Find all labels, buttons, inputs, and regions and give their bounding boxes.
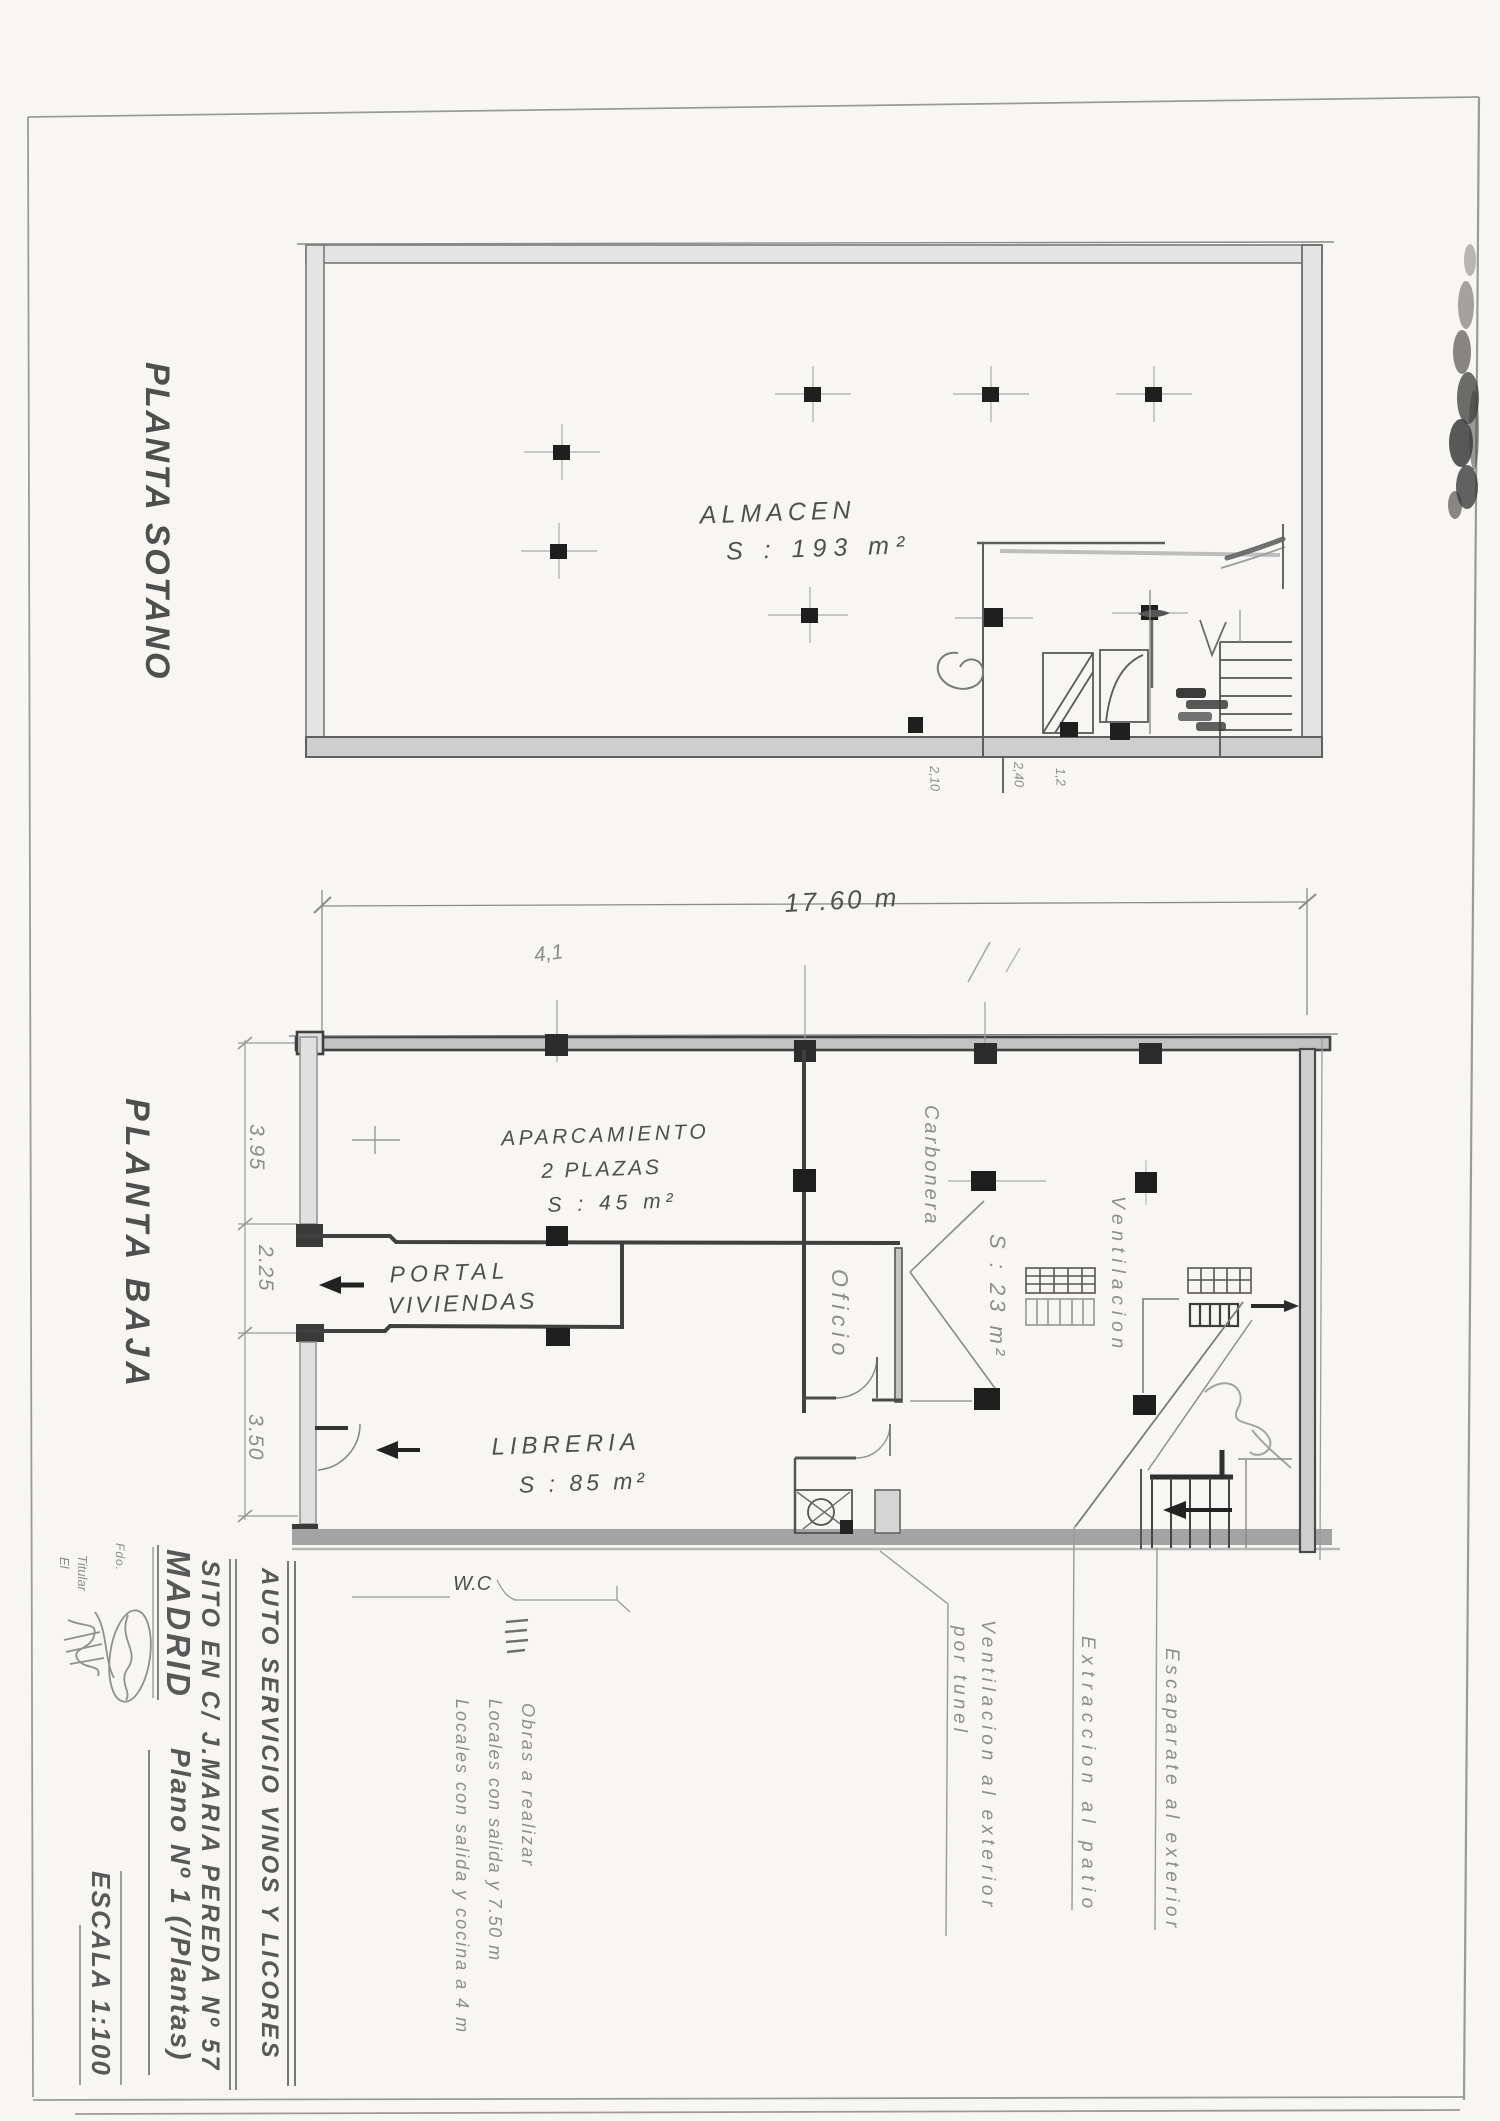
svg-text:PLANTA SOTANO: PLANTA SOTANO — [138, 362, 176, 681]
svg-text:S : 23 m²: S : 23 m² — [985, 1234, 1010, 1359]
svg-text:Ventilacion al exterior: Ventilacion al exterior — [977, 1620, 998, 1911]
svg-text:AUTO SERVICIO VINOS Y LICORES: AUTO SERVICIO VINOS Y LICORES — [256, 1567, 283, 2060]
svg-text:S : 45 m²: S : 45 m² — [547, 1189, 678, 1217]
svg-text:por tunel: por tunel — [949, 1625, 970, 1736]
svg-text:Titular: Titular — [75, 1555, 90, 1592]
svg-text:S : 85 m²: S : 85 m² — [518, 1467, 648, 1497]
svg-text:1,2: 1,2 — [1053, 768, 1069, 787]
svg-text:17.60 m: 17.60 m — [784, 882, 900, 918]
svg-text:Extraccion al patio: Extraccion al patio — [1077, 1636, 1098, 1915]
svg-text:Ventilacion: Ventilacion — [1107, 1196, 1128, 1354]
svg-text:W.C: W.C — [453, 1573, 492, 1595]
svg-text:VIVIENDAS: VIVIENDAS — [387, 1287, 538, 1318]
svg-text:ALMACEN: ALMACEN — [697, 496, 856, 529]
svg-text:Fdo.: Fdo. — [113, 1543, 127, 1571]
svg-text:Carbonera: Carbonera — [920, 1105, 942, 1227]
svg-text:SITO EN C/ J.MARIA PEREDA Nº 5: SITO EN C/ J.MARIA PEREDA Nº 57 — [196, 1560, 224, 2072]
svg-text:Escaparate al exterior: Escaparate al exterior — [1161, 1648, 1182, 1932]
svg-text:2.25: 2.25 — [254, 1244, 277, 1292]
svg-text:El: El — [57, 1557, 72, 1570]
svg-text:Locales con salida y cocina a: Locales con salida y cocina a 4 m — [452, 1699, 472, 2034]
svg-text:2,40: 2,40 — [1011, 761, 1027, 789]
svg-text:Plano Nº 1 (/Plantas): Plano Nº 1 (/Plantas) — [165, 1748, 196, 2062]
svg-text:PORTAL: PORTAL — [389, 1257, 510, 1287]
svg-text:2,10: 2,10 — [927, 765, 943, 793]
svg-text:Locales con salida y 7.50 m: Locales con salida y 7.50 m — [485, 1699, 505, 1962]
svg-text:ESCALA 1:100: ESCALA 1:100 — [86, 1871, 116, 2077]
svg-text:3.50: 3.50 — [244, 1414, 267, 1461]
svg-text:4,1: 4,1 — [532, 940, 564, 967]
svg-text:PLANTA BAJA: PLANTA BAJA — [118, 1098, 156, 1391]
svg-text:3.95: 3.95 — [245, 1124, 268, 1171]
svg-text:Oficio: Oficio — [827, 1269, 853, 1361]
svg-text:Obras a realizar: Obras a realizar — [518, 1703, 538, 1868]
svg-text:2 PLAZAS: 2 PLAZAS — [540, 1156, 662, 1183]
svg-text:LIBRERIA: LIBRERIA — [491, 1429, 641, 1461]
svg-text:MADRID: MADRID — [160, 1549, 197, 1699]
